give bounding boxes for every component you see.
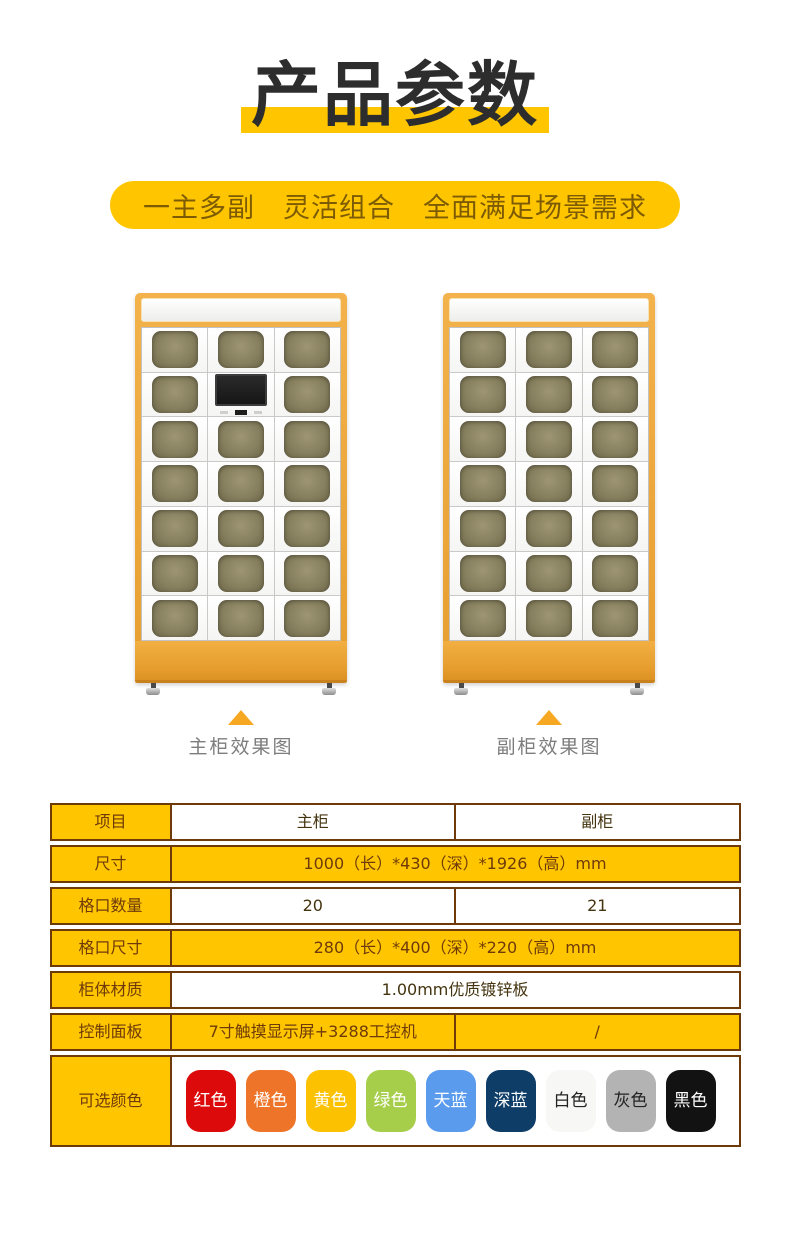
feature-banner-text: 一主多副 灵活组合 全面满足场景需求 <box>143 186 647 225</box>
feature-banner: 一主多副 灵活组合 全面满足场景需求 <box>110 181 680 229</box>
locker-door <box>583 462 648 506</box>
locker-window <box>526 510 572 547</box>
cabinet-base <box>443 641 655 683</box>
locker-window <box>460 421 506 458</box>
locker-door <box>275 462 340 506</box>
spec-label-material: 柜体材质 <box>50 971 172 1009</box>
locker-window <box>526 376 572 413</box>
spec-row-slot-count: 格口数量 20 21 <box>50 887 741 925</box>
usb-port-icon <box>235 410 247 415</box>
port-icon <box>254 411 262 414</box>
spec-row-header: 项目 主柜 副柜 <box>50 803 741 841</box>
locker-window <box>284 510 330 547</box>
locker-door <box>208 596 273 640</box>
locker-door <box>516 373 581 417</box>
locker-door <box>208 507 273 551</box>
cabinet-foot <box>629 683 645 696</box>
cabinet-foot <box>453 683 469 696</box>
color-swatch: 灰色 <box>606 1070 656 1132</box>
main-cabinet-image <box>135 293 347 683</box>
color-swatch: 深蓝 <box>486 1070 536 1132</box>
cabinet-foot <box>145 683 161 696</box>
locker-window <box>460 376 506 413</box>
locker-door <box>142 462 207 506</box>
locker-door <box>450 507 515 551</box>
spec-label-size: 尺寸 <box>50 845 172 883</box>
port-icon <box>220 411 228 414</box>
spec-header-item: 项目 <box>50 803 172 841</box>
locker-window <box>284 376 330 413</box>
locker-door <box>583 328 648 372</box>
spec-table: 项目 主柜 副柜 尺寸 1000（长）*430（深）*1926（高）mm 格口数… <box>50 803 741 1147</box>
locker-door <box>208 552 273 596</box>
page-title: 产品参数 <box>251 50 539 141</box>
locker-window <box>284 555 330 592</box>
locker-door <box>208 328 273 372</box>
locker-door <box>516 507 581 551</box>
locker-window <box>152 555 198 592</box>
spec-header-secondary: 副柜 <box>454 803 741 841</box>
locker-door <box>516 596 581 640</box>
spec-label-colors: 可选颜色 <box>50 1055 172 1147</box>
locker-door <box>142 552 207 596</box>
spec-value-slot-size: 280（长）*400（深）*220（高）mm <box>170 929 741 967</box>
color-swatch: 白色 <box>546 1070 596 1132</box>
spec-value-slot-count-secondary: 21 <box>454 887 741 925</box>
secondary-cabinet-doors <box>449 327 649 641</box>
ports <box>220 410 262 415</box>
locker-window <box>218 510 264 547</box>
spec-label-slot-size: 格口尺寸 <box>50 929 172 967</box>
locker-door <box>275 596 340 640</box>
locker-door <box>142 328 207 372</box>
color-swatch: 橙色 <box>246 1070 296 1132</box>
spec-row-material: 柜体材质 1.00mm优质镀锌板 <box>50 971 741 1009</box>
spec-value-material: 1.00mm优质镀锌板 <box>170 971 741 1009</box>
locker-door <box>208 462 273 506</box>
locker-window <box>592 376 638 413</box>
spec-header-main: 主柜 <box>170 803 457 841</box>
locker-door <box>142 507 207 551</box>
spec-value-size: 1000（长）*430（深）*1926（高）mm <box>170 845 741 883</box>
locker-door <box>275 373 340 417</box>
locker-window <box>460 331 506 368</box>
spec-label-slot-count: 格口数量 <box>50 887 172 925</box>
locker-window <box>152 331 198 368</box>
locker-door <box>275 552 340 596</box>
locker-door <box>583 373 648 417</box>
spec-value-control-panel-main: 7寸触摸显示屏+3288工控机 <box>170 1013 457 1051</box>
locker-window <box>460 600 506 637</box>
secondary-cabinet-caption-block: 副柜效果图 <box>443 710 655 759</box>
secondary-cabinet-caption: 副柜效果图 <box>443 732 655 759</box>
locker-door <box>275 328 340 372</box>
locker-window <box>218 555 264 592</box>
locker-window <box>592 600 638 637</box>
locker-window <box>460 510 506 547</box>
cabinet-images: 主柜效果图 副柜效果图 <box>0 293 790 759</box>
spec-row-control-panel: 控制面板 7寸触摸显示屏+3288工控机 / <box>50 1013 741 1051</box>
locker-door <box>450 462 515 506</box>
cabinet-light-panel <box>141 298 341 322</box>
locker-door <box>142 596 207 640</box>
locker-window <box>526 555 572 592</box>
spec-row-slot-size: 格口尺寸 280（长）*400（深）*220（高）mm <box>50 929 741 967</box>
title-section: 产品参数 <box>0 0 790 141</box>
locker-window <box>284 421 330 458</box>
locker-window <box>526 421 572 458</box>
locker-door <box>516 462 581 506</box>
locker-window <box>526 600 572 637</box>
cabinet-base <box>135 641 347 683</box>
locker-door <box>516 417 581 461</box>
locker-window <box>592 465 638 502</box>
cabinet-header <box>443 293 655 327</box>
locker-door <box>516 328 581 372</box>
locker-door <box>583 507 648 551</box>
locker-window <box>152 600 198 637</box>
spec-row-size: 尺寸 1000（长）*430（深）*1926（高）mm <box>50 845 741 883</box>
locker-door <box>208 373 273 417</box>
cabinet-light-panel <box>449 298 649 322</box>
main-cabinet-caption: 主柜效果图 <box>135 732 347 759</box>
locker-door <box>208 417 273 461</box>
main-cabinet-figure: 主柜效果图 <box>135 293 347 759</box>
locker-window <box>152 421 198 458</box>
locker-window <box>284 465 330 502</box>
locker-door <box>516 552 581 596</box>
locker-window <box>526 465 572 502</box>
spec-label-control-panel: 控制面板 <box>50 1013 172 1051</box>
locker-window <box>218 421 264 458</box>
spec-value-control-panel-secondary: / <box>454 1013 741 1051</box>
locker-window <box>592 510 638 547</box>
locker-window <box>460 465 506 502</box>
touchscreen <box>215 374 267 406</box>
secondary-cabinet-image <box>443 293 655 683</box>
cabinet-feet <box>135 683 347 697</box>
locker-door <box>583 552 648 596</box>
cabinet-foot <box>321 683 337 696</box>
secondary-cabinet-figure: 副柜效果图 <box>443 293 655 759</box>
locker-window <box>218 600 264 637</box>
color-swatch: 绿色 <box>366 1070 416 1132</box>
locker-door <box>450 417 515 461</box>
locker-door <box>450 596 515 640</box>
locker-window <box>218 331 264 368</box>
locker-window <box>218 465 264 502</box>
color-swatch: 黄色 <box>306 1070 356 1132</box>
locker-door <box>583 596 648 640</box>
pointer-triangle-icon <box>228 710 254 725</box>
locker-door <box>450 552 515 596</box>
page-title-text: 产品参数 <box>251 54 539 136</box>
main-cabinet-doors <box>141 327 341 641</box>
locker-door <box>450 328 515 372</box>
locker-door <box>142 373 207 417</box>
main-cabinet-caption-block: 主柜效果图 <box>135 710 347 759</box>
color-swatch: 天蓝 <box>426 1070 476 1132</box>
locker-window <box>592 421 638 458</box>
locker-window <box>526 331 572 368</box>
locker-door <box>275 507 340 551</box>
locker-window <box>152 465 198 502</box>
locker-window <box>152 510 198 547</box>
spec-value-slot-count-main: 20 <box>170 887 457 925</box>
color-options: 红色橙色黄色绿色天蓝深蓝白色灰色黑色 <box>170 1055 741 1147</box>
color-swatch: 黑色 <box>666 1070 716 1132</box>
locker-door <box>142 417 207 461</box>
locker-window <box>460 555 506 592</box>
color-swatch: 红色 <box>186 1070 236 1132</box>
cabinet-header <box>135 293 347 327</box>
pointer-triangle-icon <box>536 710 562 725</box>
product-spec-page: 产品参数 一主多副 灵活组合 全面满足场景需求 主柜效果图 <box>0 0 790 1244</box>
locker-window <box>592 331 638 368</box>
locker-window <box>592 555 638 592</box>
locker-door <box>275 417 340 461</box>
locker-door <box>450 373 515 417</box>
locker-window <box>284 600 330 637</box>
locker-window <box>284 331 330 368</box>
locker-door <box>583 417 648 461</box>
locker-window <box>152 376 198 413</box>
spec-row-colors: 可选颜色 红色橙色黄色绿色天蓝深蓝白色灰色黑色 <box>50 1055 741 1147</box>
cabinet-feet <box>443 683 655 697</box>
